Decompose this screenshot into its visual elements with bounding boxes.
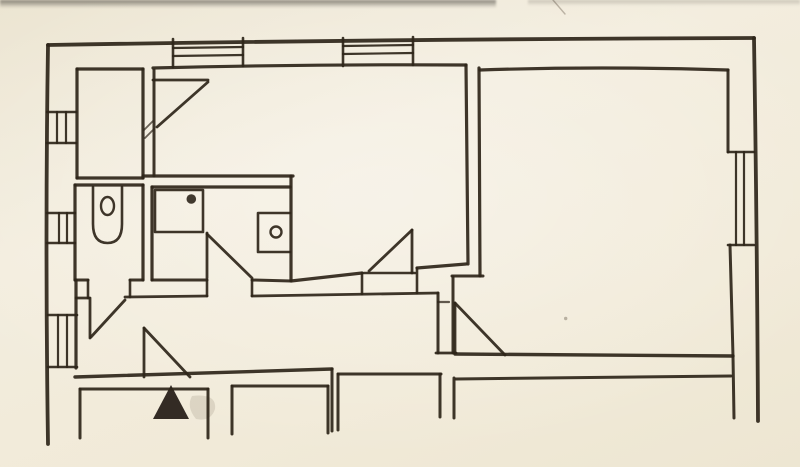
door-living-swing [369,230,412,271]
living-room-bottom-east [417,264,466,268]
door-bath-swing [207,234,252,278]
toilet-drain [101,197,114,215]
door-big-room-swing [455,303,505,355]
photo-edge-shadow [0,0,496,8]
door-entry-swing [144,328,190,377]
door-wc-swing [91,300,125,337]
corridor-bottom [75,369,332,377]
outer-wall-right [754,38,758,421]
terrace-right-wall [733,356,734,418]
appliance-knob [271,227,282,238]
appliance-outline [258,213,290,252]
big-room-left [479,68,480,276]
big-room-bottom [455,354,733,356]
window-top-1-pane-2 [173,55,243,56]
paper-speck [564,317,567,320]
living-room-top [153,65,466,68]
big-room-right-lower [730,245,733,356]
living-room-right [466,65,468,264]
window-top-2-pane-1 [343,45,413,46]
outer-wall-top [48,38,754,45]
outer-wall-left [47,45,49,444]
photo-edge-shadow-right [528,0,800,6]
sink-faucet-dot [187,194,197,204]
sink-outline [155,190,203,232]
terrace-edge [456,376,731,379]
corridor-top-seg2 [125,296,207,297]
big-room-top [480,68,728,70]
window-top-1-pane-1 [173,47,243,48]
entrance-smudge [190,396,215,420]
living-room-bottom-west [291,273,362,281]
floor-plan-sketch [0,0,800,467]
corridor-top-seg3 [252,293,438,296]
window-top-2-pane-2 [343,53,413,54]
paper-sheet [0,0,800,467]
door-hall-swing [157,82,208,127]
wall-hatch-1 [144,121,153,130]
bathroom-bottom-right-seg [252,280,291,281]
